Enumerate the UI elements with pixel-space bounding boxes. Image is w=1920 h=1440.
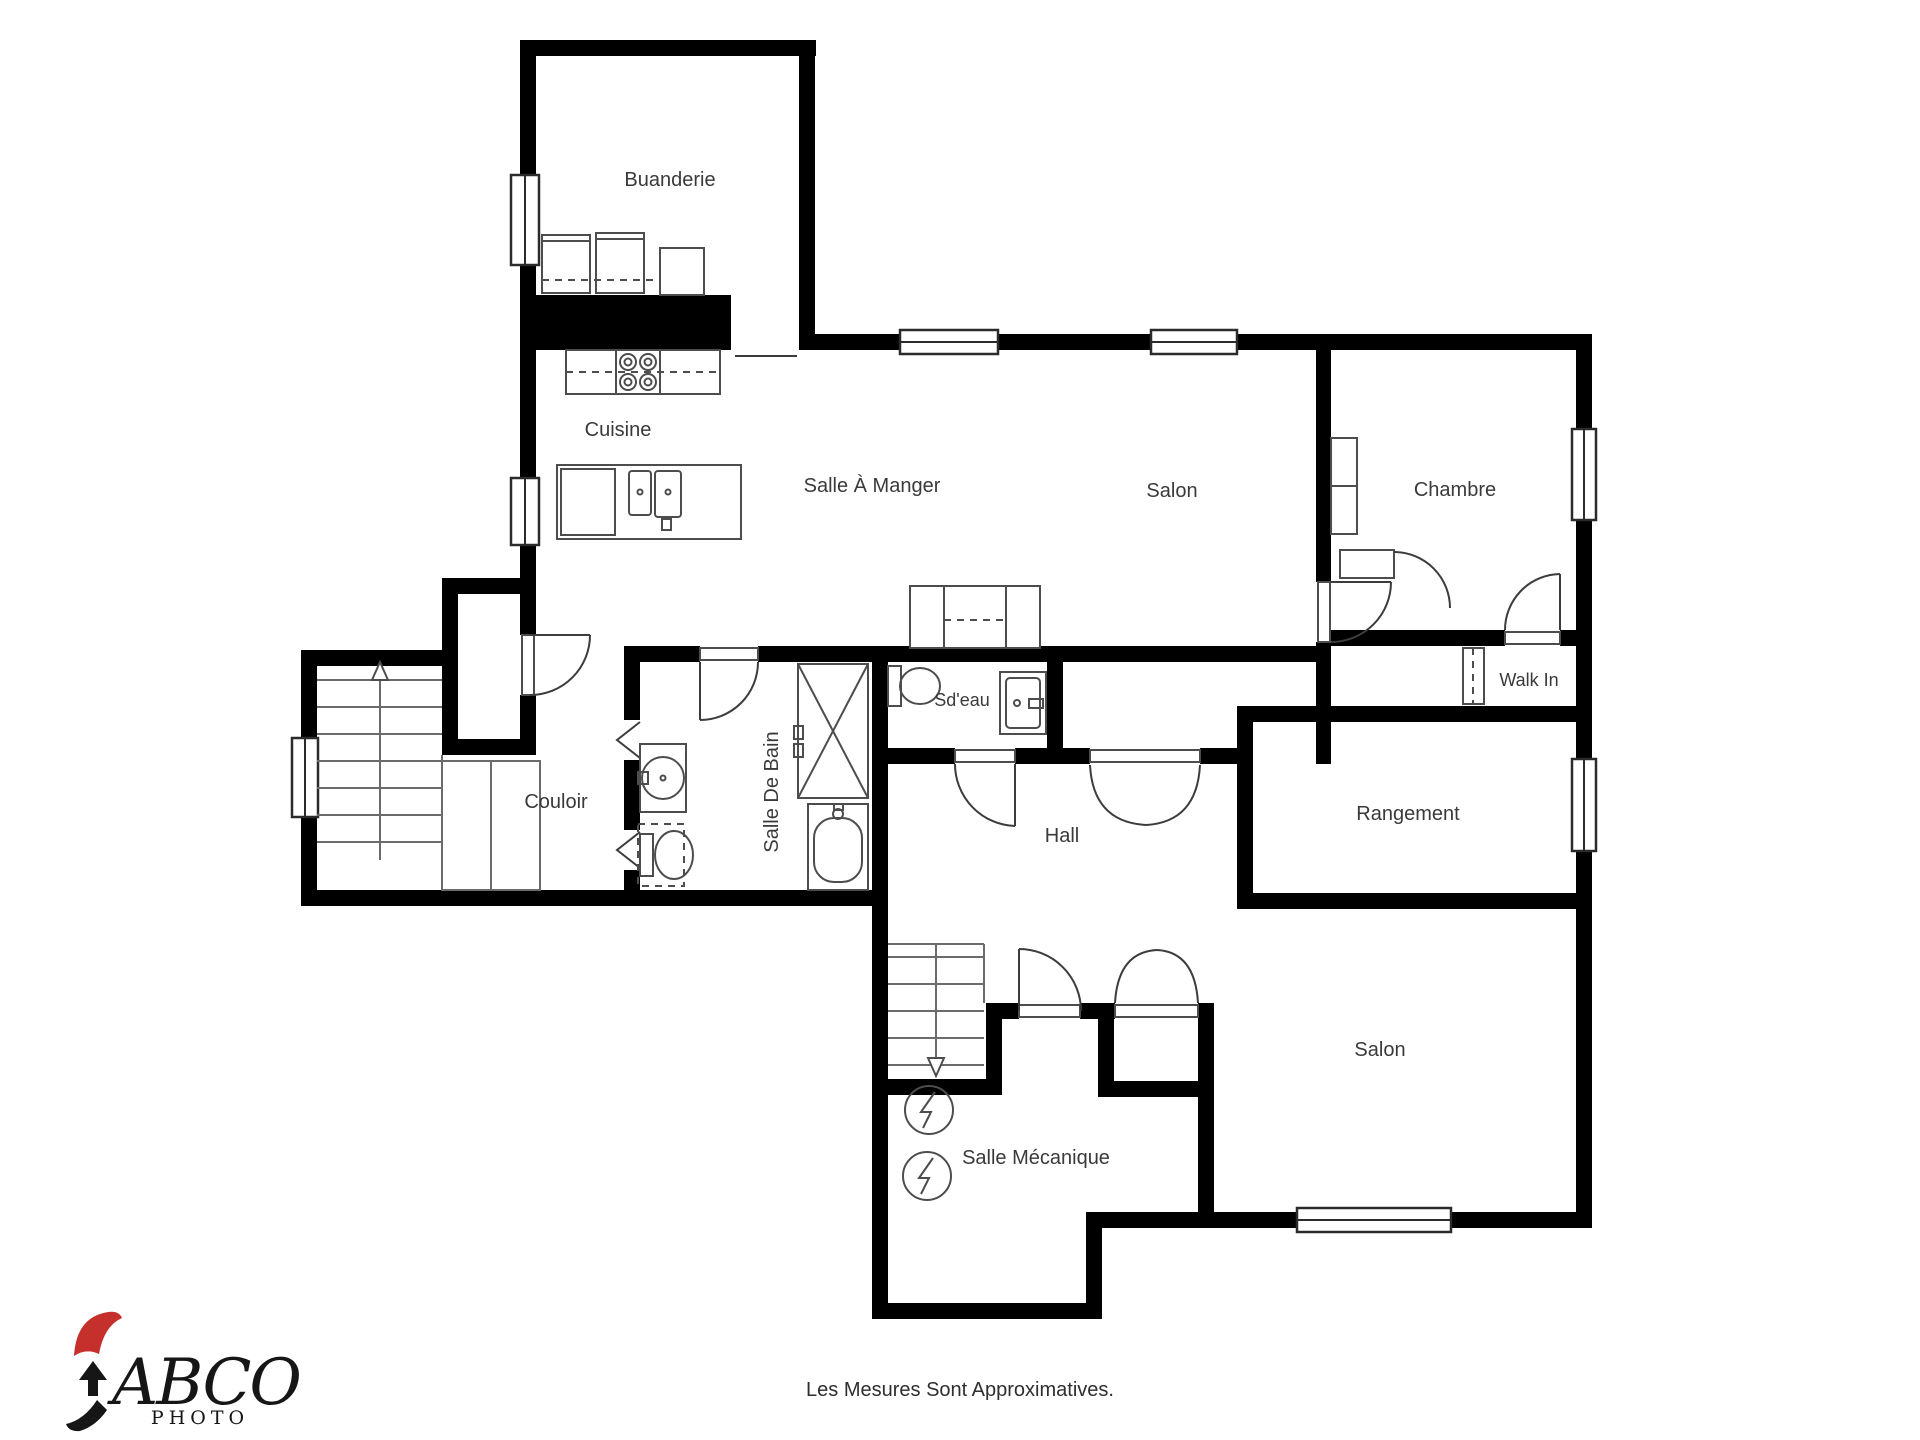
label-walk-in: Walk In [1499, 670, 1558, 690]
bathtub-icon [808, 804, 868, 890]
door-salle-de-bain [700, 648, 758, 720]
door-closet-double [1090, 750, 1200, 825]
label-hall: Hall [1045, 825, 1079, 847]
floorplan-page: Buanderie Cuisine Salle À Manger Salon C… [0, 0, 1920, 1440]
sofa-icon [910, 586, 1040, 648]
window-salle-a-manger [900, 330, 998, 354]
floorplan-svg: Buanderie Cuisine Salle À Manger Salon C… [0, 0, 1920, 1440]
label-couloir: Couloir [524, 791, 588, 813]
logo-house-arrow-icon [79, 1361, 107, 1396]
label-salle-mecanique: Salle Mécanique [962, 1147, 1110, 1169]
nightstand-icons [1331, 438, 1357, 534]
label-salon-haut: Salon [1146, 480, 1197, 502]
label-rangement: Rangement [1356, 803, 1460, 825]
window-rangement [1572, 759, 1596, 851]
stairs-down-icon [888, 944, 984, 1076]
dryer-icon [596, 233, 644, 293]
label-salle-a-manger: Salle À Manger [804, 474, 941, 497]
bathroom-sink-icon [638, 744, 686, 812]
door-walk-in-chambre [1505, 574, 1560, 644]
kitchen-island-icon [557, 465, 741, 539]
door-vestibule [522, 635, 590, 695]
kitchen-counter-block [536, 295, 731, 350]
label-cuisine: Cuisine [585, 419, 652, 441]
electrical-panel-icon [903, 1086, 953, 1200]
bathroom-toilet-icon [638, 824, 693, 886]
door-landing [1019, 949, 1081, 1017]
washer-icon [542, 235, 590, 293]
label-chambre: Chambre [1414, 479, 1496, 501]
window-cuisine [511, 478, 539, 545]
vanity-sdeau-icon [1000, 672, 1046, 734]
window-salon [1151, 330, 1237, 354]
door-chambre [1318, 550, 1450, 642]
stove-icon [566, 350, 720, 394]
label-salle-de-bain: Salle De Bain [761, 731, 783, 852]
window-chambre [1572, 429, 1596, 520]
door-sdeau [955, 750, 1015, 826]
toilet-sdeau-icon [888, 666, 940, 706]
opening-walk-in [1463, 648, 1484, 704]
label-salon-bas: Salon [1354, 1039, 1405, 1061]
shower-icon [794, 664, 868, 798]
logo-subtext: PHOTO [151, 1407, 249, 1429]
label-sdeau: Sd'eau [934, 690, 990, 710]
footer-disclaimer: Les Mesures Sont Approximatives. [806, 1379, 1114, 1401]
laundry-tub-icon [660, 248, 704, 295]
window-salon-bas [1297, 1208, 1451, 1232]
stairs-up-icon [317, 662, 540, 890]
label-buanderie: Buanderie [624, 169, 715, 191]
logo: ABCO PHOTO [66, 1312, 301, 1431]
window-buanderie [511, 175, 539, 265]
door-closet-bas-double [1115, 950, 1198, 1017]
window-stairs [292, 738, 318, 817]
logo-swoosh-icon [66, 1400, 107, 1431]
